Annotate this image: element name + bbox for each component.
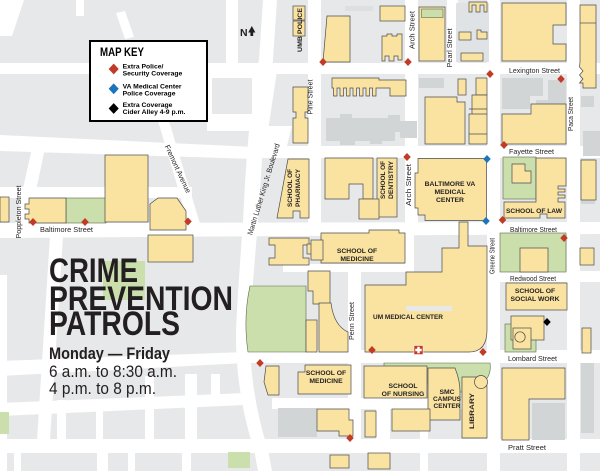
svg-text:Pearl Street: Pearl Street	[445, 28, 454, 68]
svg-text:MEDICAL: MEDICAL	[435, 189, 466, 196]
svg-text:4 p.m. to 8 p.m.: 4 p.m. to 8 p.m.	[49, 379, 156, 398]
svg-text:PHARMACY: PHARMACY	[295, 169, 302, 207]
svg-text:MEDICINE: MEDICINE	[309, 378, 343, 385]
svg-text:Security Coverage: Security Coverage	[123, 71, 183, 78]
svg-text:Greene Street: Greene Street	[488, 237, 497, 274]
svg-text:Redwood Street: Redwood Street	[510, 274, 557, 283]
svg-text:Extra Police/: Extra Police/	[123, 64, 164, 71]
svg-text:CAMPUS: CAMPUS	[433, 396, 461, 403]
svg-text:SCHOOL OF: SCHOOL OF	[380, 161, 387, 199]
svg-text:Fayette Street: Fayette Street	[509, 147, 555, 156]
svg-text:Pine Street: Pine Street	[306, 79, 315, 115]
svg-text:BALTIMORE VA: BALTIMORE VA	[425, 181, 476, 188]
svg-text:Arch Street: Arch Street	[408, 10, 417, 49]
svg-text:PATROLS: PATROLS	[49, 305, 180, 343]
svg-text:N: N	[240, 27, 248, 39]
svg-text:Police Coverage: Police Coverage	[123, 91, 176, 98]
svg-text:MAP KEY: MAP KEY	[100, 47, 144, 59]
svg-text:DENTISTRY: DENTISTRY	[388, 161, 395, 199]
svg-text:Lombard Street: Lombard Street	[508, 354, 558, 363]
svg-text:Baltimore Street: Baltimore Street	[40, 225, 94, 234]
svg-text:SCHOOL OF: SCHOOL OF	[337, 248, 377, 255]
svg-text:Monday — Friday: Monday — Friday	[49, 344, 170, 363]
svg-text:OF NURSING: OF NURSING	[382, 391, 425, 398]
svg-text:Penn Street: Penn Street	[347, 301, 356, 340]
svg-text:MEDICINE: MEDICINE	[340, 256, 374, 263]
svg-text:SCHOOL OF: SCHOOL OF	[306, 370, 346, 377]
svg-text:LIBRARY: LIBRARY	[469, 392, 476, 429]
svg-text:CENTER: CENTER	[434, 403, 461, 410]
svg-text:SCHOOL OF: SCHOOL OF	[515, 288, 555, 295]
svg-text:Extra Coverage: Extra Coverage	[123, 102, 173, 109]
svg-text:Lexington Street: Lexington Street	[509, 66, 561, 75]
svg-text:Arch Street: Arch Street	[404, 163, 413, 206]
svg-text:Pratt Street: Pratt Street	[508, 443, 547, 452]
svg-text:Cider Alley 4-9 p.m.: Cider Alley 4-9 p.m.	[123, 109, 186, 116]
svg-text:VA Medical Center: VA Medical Center	[123, 84, 182, 91]
svg-text:UM MEDICAL CENTER: UM MEDICAL CENTER	[373, 314, 443, 321]
svg-text:CENTER: CENTER	[436, 197, 464, 204]
svg-text:SOCIAL WORK: SOCIAL WORK	[511, 296, 560, 303]
svg-text:Paca Street: Paca Street	[566, 96, 575, 131]
svg-text:Baltimore Street: Baltimore Street	[510, 225, 558, 234]
svg-text:Poppleton Street: Poppleton Street	[14, 185, 23, 239]
svg-text:SCHOOL OF: SCHOOL OF	[287, 169, 294, 207]
svg-text:SMC: SMC	[439, 389, 454, 396]
svg-text:SCHOOL: SCHOOL	[388, 383, 417, 390]
svg-text:UMB POLICE: UMB POLICE	[297, 8, 304, 52]
svg-text:SCHOOL OF LAW: SCHOOL OF LAW	[506, 208, 563, 215]
